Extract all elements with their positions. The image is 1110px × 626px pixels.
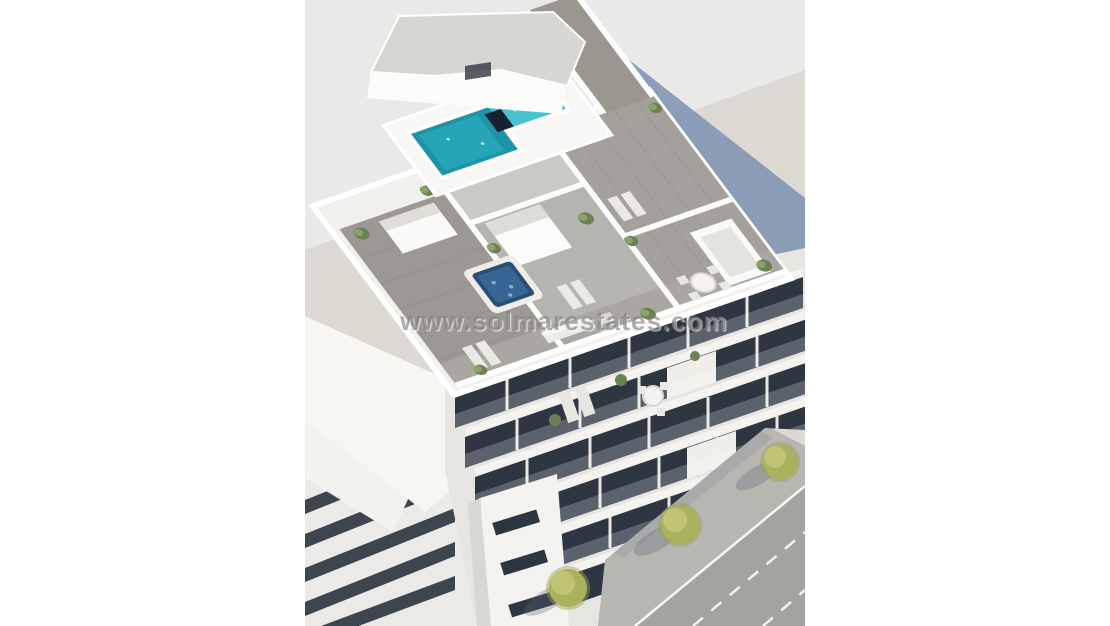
balcony-chair <box>638 386 646 394</box>
penthouse-roof <box>367 12 585 114</box>
potted-plant <box>690 351 700 361</box>
tree <box>546 566 590 610</box>
potted-plant <box>549 414 561 426</box>
watermark-text: www.solmarestates.com <box>399 306 728 336</box>
building-aerial-render-image: www.solmarestates.com www.solmarestates.… <box>305 0 805 626</box>
page-canvas: www.solmarestates.com www.solmarestates.… <box>0 0 1110 626</box>
balcony-chair <box>657 408 665 416</box>
balcony-chair <box>660 382 668 390</box>
tree <box>760 442 800 482</box>
tree <box>658 503 702 547</box>
watermark: www.solmarestates.com www.solmarestates.… <box>399 306 729 338</box>
real-estate-render: www.solmarestates.com www.solmarestates.… <box>305 0 805 626</box>
potted-plant <box>615 374 627 386</box>
